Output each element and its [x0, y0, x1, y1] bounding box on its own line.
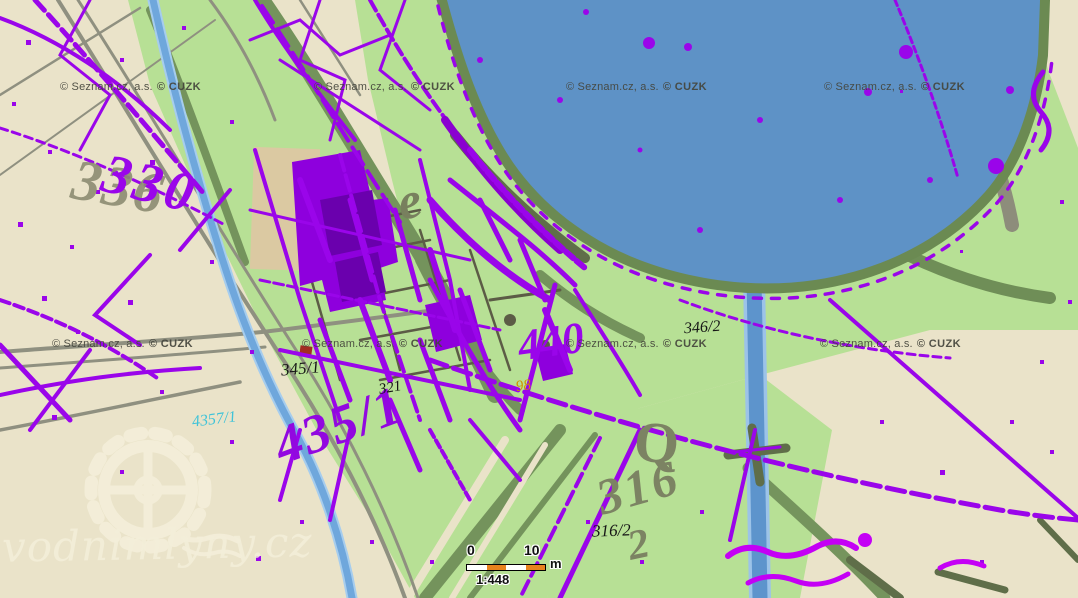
attribution-provider: © Seznam.cz, a.s. [302, 339, 395, 350]
attribution-cadastre: © CUZK [411, 82, 455, 93]
attribution: © Seznam.cz, a.s.© CUZK [824, 82, 965, 93]
scale-bar: 0 10 m 1:448 [450, 543, 575, 591]
attribution-provider: © Seznam.cz, a.s. [60, 82, 153, 93]
scale-unit-label: m [550, 557, 562, 570]
scale-bar-segments [466, 564, 546, 571]
attribution: © Seznam.cz, a.s.© CUZK [566, 339, 707, 350]
scale-ratio-label: 1:448 [476, 573, 509, 586]
attribution: © Seznam.cz, a.s.© CUZK [820, 339, 961, 350]
attribution-provider: © Seznam.cz, a.s. [820, 339, 913, 350]
attribution-provider: © Seznam.cz, a.s. [314, 82, 407, 93]
attribution-provider: © Seznam.cz, a.s. [52, 339, 145, 350]
parcel-label-316-2: 316/2 [592, 521, 631, 539]
attribution-cadastre: © CUZK [663, 82, 707, 93]
attribution-cadastre: © CUZK [663, 339, 707, 350]
attribution: © Seznam.cz, a.s.© CUZK [52, 339, 193, 350]
attribution-provider: © Seznam.cz, a.s. [566, 82, 659, 93]
attribution-provider: © Seznam.cz, a.s. [824, 82, 917, 93]
attribution-cadastre: © CUZK [917, 339, 961, 350]
attribution-cadastre: © CUZK [149, 339, 193, 350]
attribution-cadastre: © CUZK [399, 339, 443, 350]
scale-end-label: 10 [524, 543, 540, 557]
attribution: © Seznam.cz, a.s.© CUZK [302, 339, 443, 350]
attribution: © Seznam.cz, a.s.© CUZK [566, 82, 707, 93]
attribution: © Seznam.cz, a.s.© CUZK [314, 82, 455, 93]
parcel-label-98: 98 [515, 378, 532, 395]
historic-symbol-Q: Q [632, 412, 681, 473]
scale-start-label: 0 [467, 543, 475, 557]
parcel-label-346-2: 346/2 [683, 319, 720, 338]
attribution-cadastre: © CUZK [921, 82, 965, 93]
watermark-text: vodnimlyny.cz [2, 521, 313, 568]
map-viewport[interactable]: vodnimlyny.cz 336 330 435/1 440 316 2 Q … [0, 0, 1078, 598]
attribution: © Seznam.cz, a.s.© CUZK [60, 82, 201, 93]
attribution-cadastre: © CUZK [157, 82, 201, 93]
attribution-provider: © Seznam.cz, a.s. [566, 339, 659, 350]
parcel-label-345-1: 345/1 [280, 358, 320, 378]
